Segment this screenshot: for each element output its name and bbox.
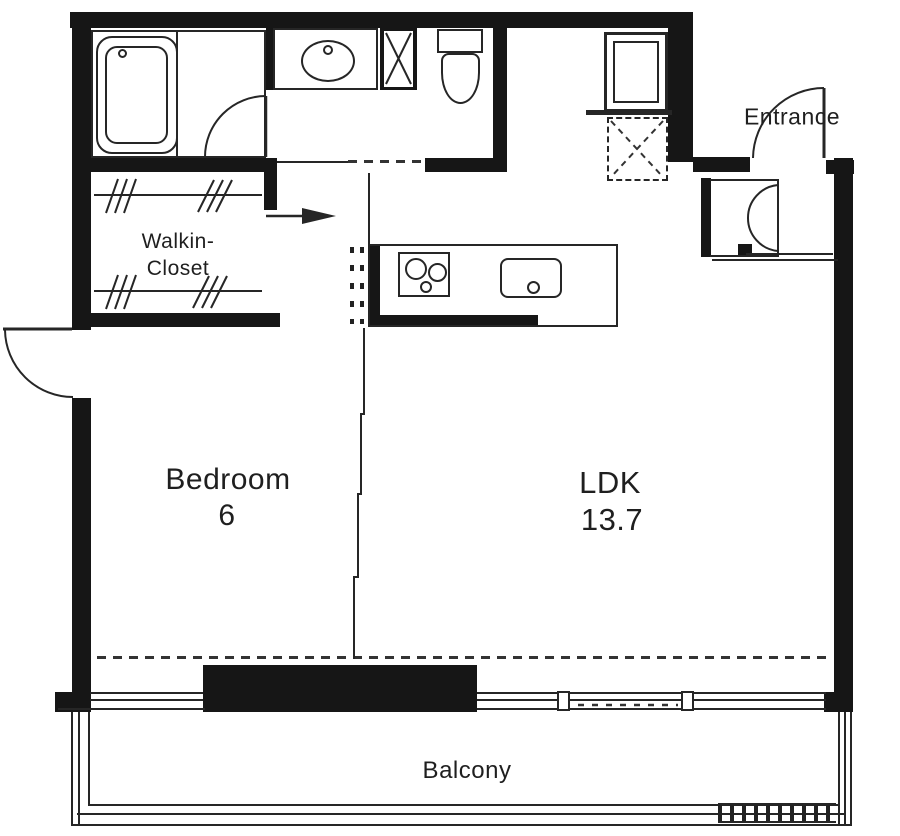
entrance-floor-line [712, 259, 838, 261]
wall-washroom-right [493, 28, 507, 170]
stove-burner-large-icon [405, 258, 427, 280]
storage-cabinet-inner [613, 41, 659, 103]
toilet-bowl [441, 53, 480, 104]
balcony-label: Balcony [423, 757, 512, 785]
washing-machine-space [380, 28, 417, 90]
wall-closet-top [72, 158, 277, 172]
balcony-rail-right-outer [850, 712, 852, 826]
balcony-rail-left-outer [71, 712, 73, 826]
toilet-tank [437, 29, 483, 53]
window-mullion-right [681, 691, 694, 711]
sliding-partition [354, 328, 364, 659]
entrance-step-line [746, 253, 833, 255]
bathtub-drain-icon [118, 49, 127, 58]
left-side-door [3, 329, 73, 397]
shelf-line [586, 110, 672, 115]
balcony-divider-grating [718, 803, 836, 823]
sink-drain-icon [527, 281, 540, 294]
bedroom-window [90, 692, 203, 694]
refrigerator-space [607, 117, 668, 181]
floor-plan: Bedroom 6 LDK 13.7 Walkin- Closet Entran… [0, 0, 900, 836]
bedroom-label: Bedroom [165, 463, 290, 497]
ldk-window-line2 [477, 699, 826, 701]
wall-topright-vertical [668, 12, 693, 162]
bathtub-inner [105, 46, 168, 144]
balcony-rail-right-inner [838, 712, 840, 826]
basin-faucet-icon [323, 45, 333, 55]
ldk-label: LDK [579, 465, 641, 501]
stove-burner-medium-icon [428, 263, 447, 282]
wall-entrance-top [693, 157, 750, 172]
balcony-rail-right-mid [844, 712, 846, 826]
ldk-size-label: 13.7 [581, 502, 643, 538]
dashed-partition-line [97, 656, 833, 659]
walk-in-closet-label-line2: Closet [147, 257, 210, 281]
wall-closet-right [264, 172, 277, 210]
walk-in-closet-label-line1: Walkin- [142, 230, 215, 254]
wall-top-exterior [70, 12, 693, 28]
shoe-cabinet [710, 179, 779, 257]
balcony-rail-bottom-outer [71, 824, 852, 826]
wall-right-exterior [834, 158, 853, 712]
wall-bottom-center [203, 665, 477, 712]
balcony-rail-left-inner [88, 712, 90, 806]
closet-entry-arrow-icon [266, 208, 336, 224]
washroom-sliding-door [348, 160, 425, 163]
counter-side-dashes [352, 247, 362, 324]
entrance-label: Entrance [744, 104, 840, 131]
washroom-door-rail [277, 161, 348, 163]
bedroom-size-label: 6 [218, 499, 235, 533]
wall-left-lower [72, 398, 91, 712]
wall-bottomright-pillar [824, 692, 853, 712]
stove-burner-small-icon [420, 281, 432, 293]
ldk-window [477, 692, 826, 694]
ldk-window-sill [477, 708, 826, 710]
window-mullion-left [557, 691, 570, 711]
wall-washroom-bottom [425, 158, 507, 172]
balcony-rail-left-mid [78, 712, 80, 826]
bedroom-window-sill [58, 708, 205, 710]
wall-closet-bottom [72, 313, 280, 327]
bedroom-window-line2 [90, 699, 203, 701]
